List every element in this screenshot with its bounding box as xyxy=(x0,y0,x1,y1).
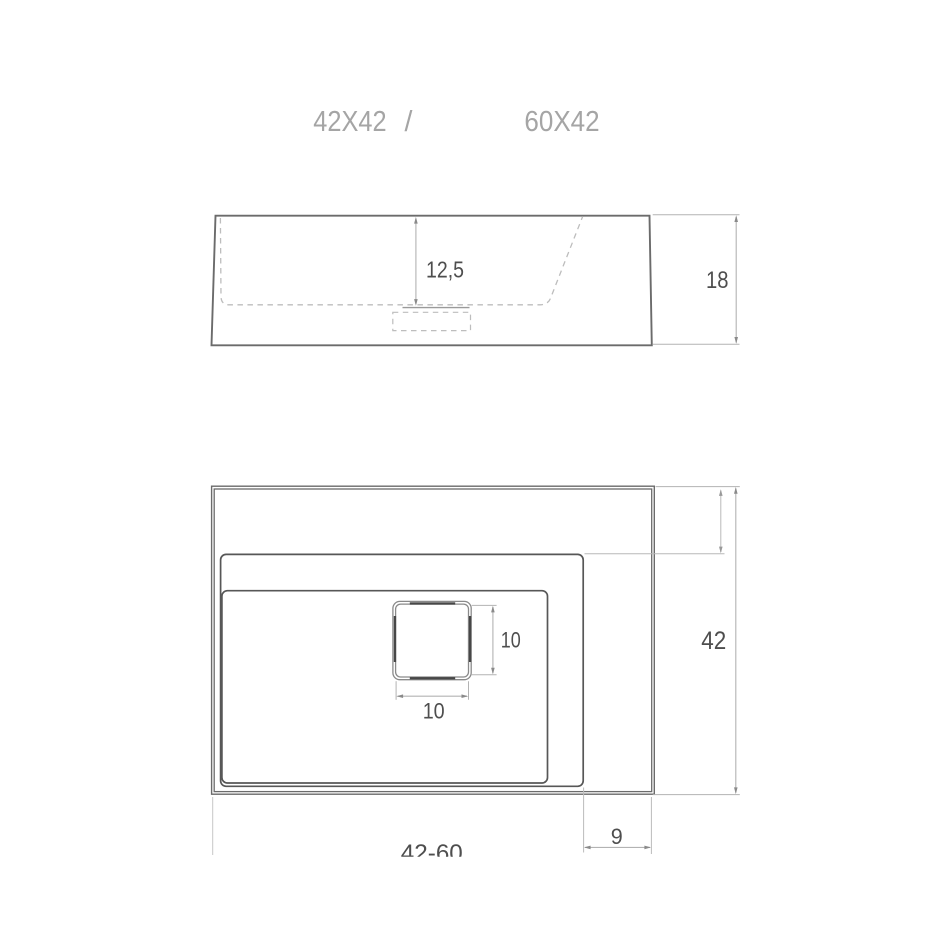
svg-text:9: 9 xyxy=(611,824,623,849)
svg-text:18: 18 xyxy=(706,267,729,294)
svg-text:10: 10 xyxy=(423,698,445,723)
svg-text:/: / xyxy=(405,106,413,138)
svg-text:10: 10 xyxy=(501,628,521,653)
svg-text:12,5: 12,5 xyxy=(426,257,464,283)
svg-text:42X42: 42X42 xyxy=(313,106,386,138)
svg-text:60X42: 60X42 xyxy=(524,106,599,138)
svg-text:42: 42 xyxy=(701,627,726,655)
